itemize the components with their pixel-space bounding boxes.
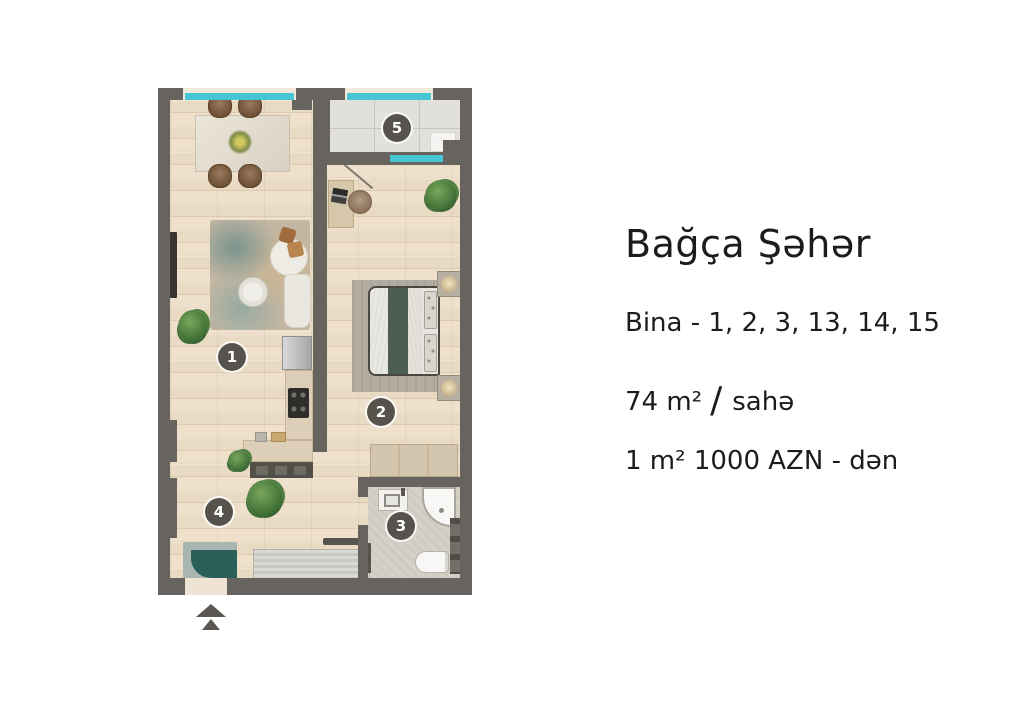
room-marker-3-label: 3 — [396, 517, 406, 535]
lamp — [441, 380, 457, 396]
window-top-left — [183, 88, 296, 100]
tv — [170, 232, 177, 298]
nightstand — [437, 271, 461, 297]
wall-segment — [358, 525, 368, 578]
room-marker-1-label: 1 — [227, 348, 237, 366]
room-marker-2: 2 — [367, 398, 395, 426]
plant — [178, 310, 208, 344]
shower-drain — [439, 508, 444, 513]
hall-rug-inner — [191, 550, 237, 578]
kitchen-appliance-a — [255, 432, 267, 442]
wall-segment — [292, 100, 312, 110]
balcony-door-glass — [390, 155, 443, 162]
wall-segment — [460, 88, 472, 595]
stove — [288, 388, 309, 418]
wall-segment — [158, 88, 170, 595]
area-separator: / — [710, 380, 722, 421]
hall-rug — [183, 542, 237, 578]
sink-basin — [384, 494, 400, 507]
room-marker-3: 3 — [387, 512, 415, 540]
coffee-table — [238, 277, 268, 307]
wall-segment — [358, 487, 368, 497]
project-title: Bağça Şəhər — [625, 222, 871, 266]
kitchen-appliance-b — [271, 432, 286, 442]
plant — [247, 480, 283, 518]
bench — [253, 549, 370, 579]
lamp — [441, 276, 457, 292]
sofa-chaise — [284, 274, 311, 328]
dining-chair — [238, 164, 262, 188]
table-centerpiece — [228, 130, 252, 154]
window-balcony — [345, 88, 433, 100]
entrance-arrow-icon — [196, 604, 228, 632]
bed — [368, 286, 440, 376]
sink-faucet — [401, 488, 405, 496]
page: 1 2 3 4 5 Bağça Şəhər Bina - 1, 2, 3, 13… — [0, 0, 1024, 720]
wall-segment — [443, 140, 460, 165]
wall-segment — [313, 152, 327, 452]
wardrobe — [370, 444, 458, 477]
window-glass — [185, 93, 294, 100]
area-label: sahə — [732, 387, 794, 417]
bed-pillow — [424, 291, 437, 329]
area-line: 74 m²/sahə — [625, 378, 794, 419]
fridge — [282, 336, 312, 370]
wall-segment — [313, 98, 330, 152]
laptop — [331, 188, 348, 204]
plant — [425, 180, 457, 212]
window-glass — [347, 93, 431, 100]
bed-blanket — [408, 288, 422, 374]
dining-chair — [208, 164, 232, 188]
toilet — [415, 551, 449, 573]
bed-duvet — [388, 288, 408, 374]
room-marker-4: 4 — [205, 498, 233, 526]
plant — [228, 450, 250, 472]
room-marker-5-label: 5 — [392, 119, 402, 137]
desk-chair — [348, 190, 372, 214]
wall-segment — [227, 578, 472, 595]
kitchen-lower-cabinet — [250, 462, 313, 478]
kitchen-counter-horizontal — [243, 440, 313, 462]
bed-blanket — [370, 288, 388, 374]
bath-shelves — [450, 518, 460, 574]
arrow-triangle-small — [202, 619, 220, 630]
sofa-pillow — [287, 241, 305, 259]
room-marker-2-label: 2 — [376, 403, 386, 421]
area-value: 74 m² — [625, 387, 702, 417]
price-line: 1 m² 1000 AZN - dən — [625, 446, 898, 476]
room-marker-5: 5 — [383, 114, 411, 142]
room-marker-1: 1 — [218, 343, 246, 371]
floor-plan: 1 2 3 4 5 — [158, 88, 472, 595]
wall-segment — [158, 578, 185, 595]
arrow-triangle-large — [196, 604, 226, 617]
nightstand — [437, 375, 461, 401]
wall-segment — [170, 420, 177, 462]
entrance-threshold — [185, 576, 227, 595]
bath-sink — [378, 489, 408, 511]
bed-pillow — [424, 334, 437, 372]
wall-segment — [358, 477, 460, 487]
wall-segment — [170, 478, 177, 538]
building-line: Bina - 1, 2, 3, 13, 14, 15 — [625, 308, 940, 338]
room-marker-4-label: 4 — [214, 503, 224, 521]
